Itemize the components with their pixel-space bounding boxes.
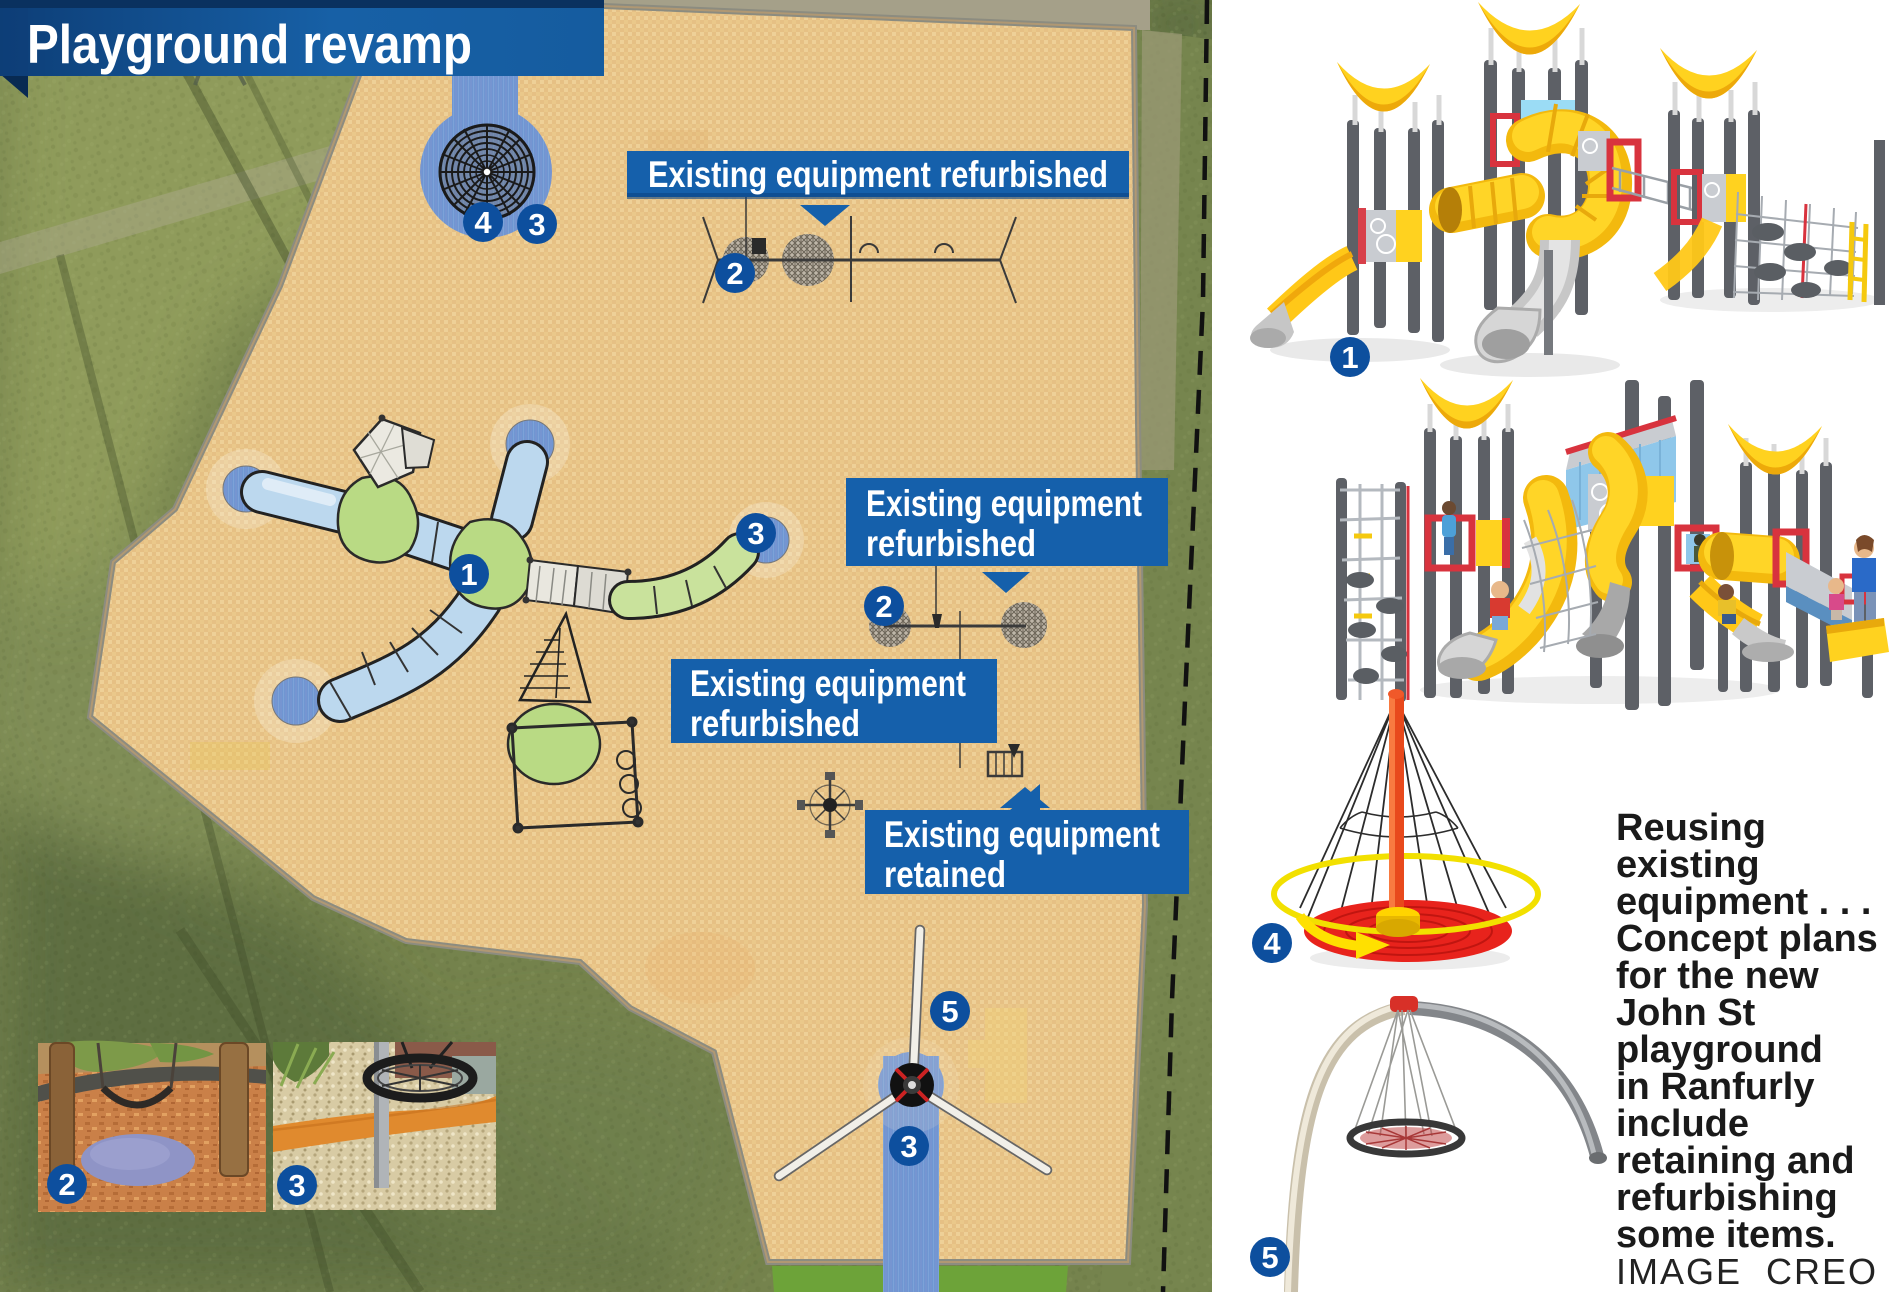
- svg-text:1: 1: [1341, 340, 1358, 375]
- svg-text:refurbishing: refurbishing: [1616, 1177, 1838, 1219]
- svg-text:Existing equipment: Existing equipment: [690, 663, 966, 704]
- svg-text:refurbished: refurbished: [866, 523, 1036, 564]
- svg-text:5: 5: [941, 994, 958, 1029]
- svg-text:Existing equipment refurbished: Existing equipment refurbished: [648, 154, 1108, 195]
- svg-text:5: 5: [1261, 1240, 1278, 1275]
- svg-text:2: 2: [875, 589, 892, 624]
- svg-text:Existing equipment: Existing equipment: [884, 814, 1160, 855]
- svg-text:existing: existing: [1616, 844, 1760, 886]
- svg-text:1: 1: [460, 557, 477, 592]
- svg-text:refurbished: refurbished: [690, 703, 860, 744]
- svg-text:Playground revamp: Playground revamp: [27, 13, 472, 75]
- svg-text:playground: playground: [1616, 1029, 1823, 1071]
- svg-text:retaining and: retaining and: [1616, 1140, 1855, 1182]
- svg-text:2: 2: [58, 1167, 75, 1202]
- svg-text:in Ranfurly: in Ranfurly: [1616, 1066, 1814, 1108]
- svg-text:3: 3: [528, 207, 545, 242]
- svg-text:retained: retained: [884, 854, 1006, 895]
- svg-text:4: 4: [474, 205, 492, 240]
- svg-text:3: 3: [747, 516, 764, 551]
- svg-text:some items.: some items.: [1616, 1214, 1836, 1256]
- svg-text:2: 2: [726, 256, 743, 291]
- svg-text:Concept plans: Concept plans: [1616, 918, 1878, 960]
- svg-text:include: include: [1616, 1103, 1749, 1145]
- svg-text:for the new: for the new: [1616, 955, 1819, 997]
- svg-text:John St: John St: [1616, 992, 1756, 1034]
- svg-text:3: 3: [288, 1168, 305, 1203]
- svg-text:3: 3: [900, 1129, 917, 1164]
- svg-text:4: 4: [1263, 926, 1281, 961]
- svg-text:IMAGE CREO: IMAGE CREO: [1616, 1251, 1876, 1292]
- svg-text:Existing equipment: Existing equipment: [866, 483, 1142, 524]
- svg-text:equipment . . .: equipment . . .: [1616, 881, 1871, 923]
- svg-text:Reusing: Reusing: [1616, 807, 1766, 849]
